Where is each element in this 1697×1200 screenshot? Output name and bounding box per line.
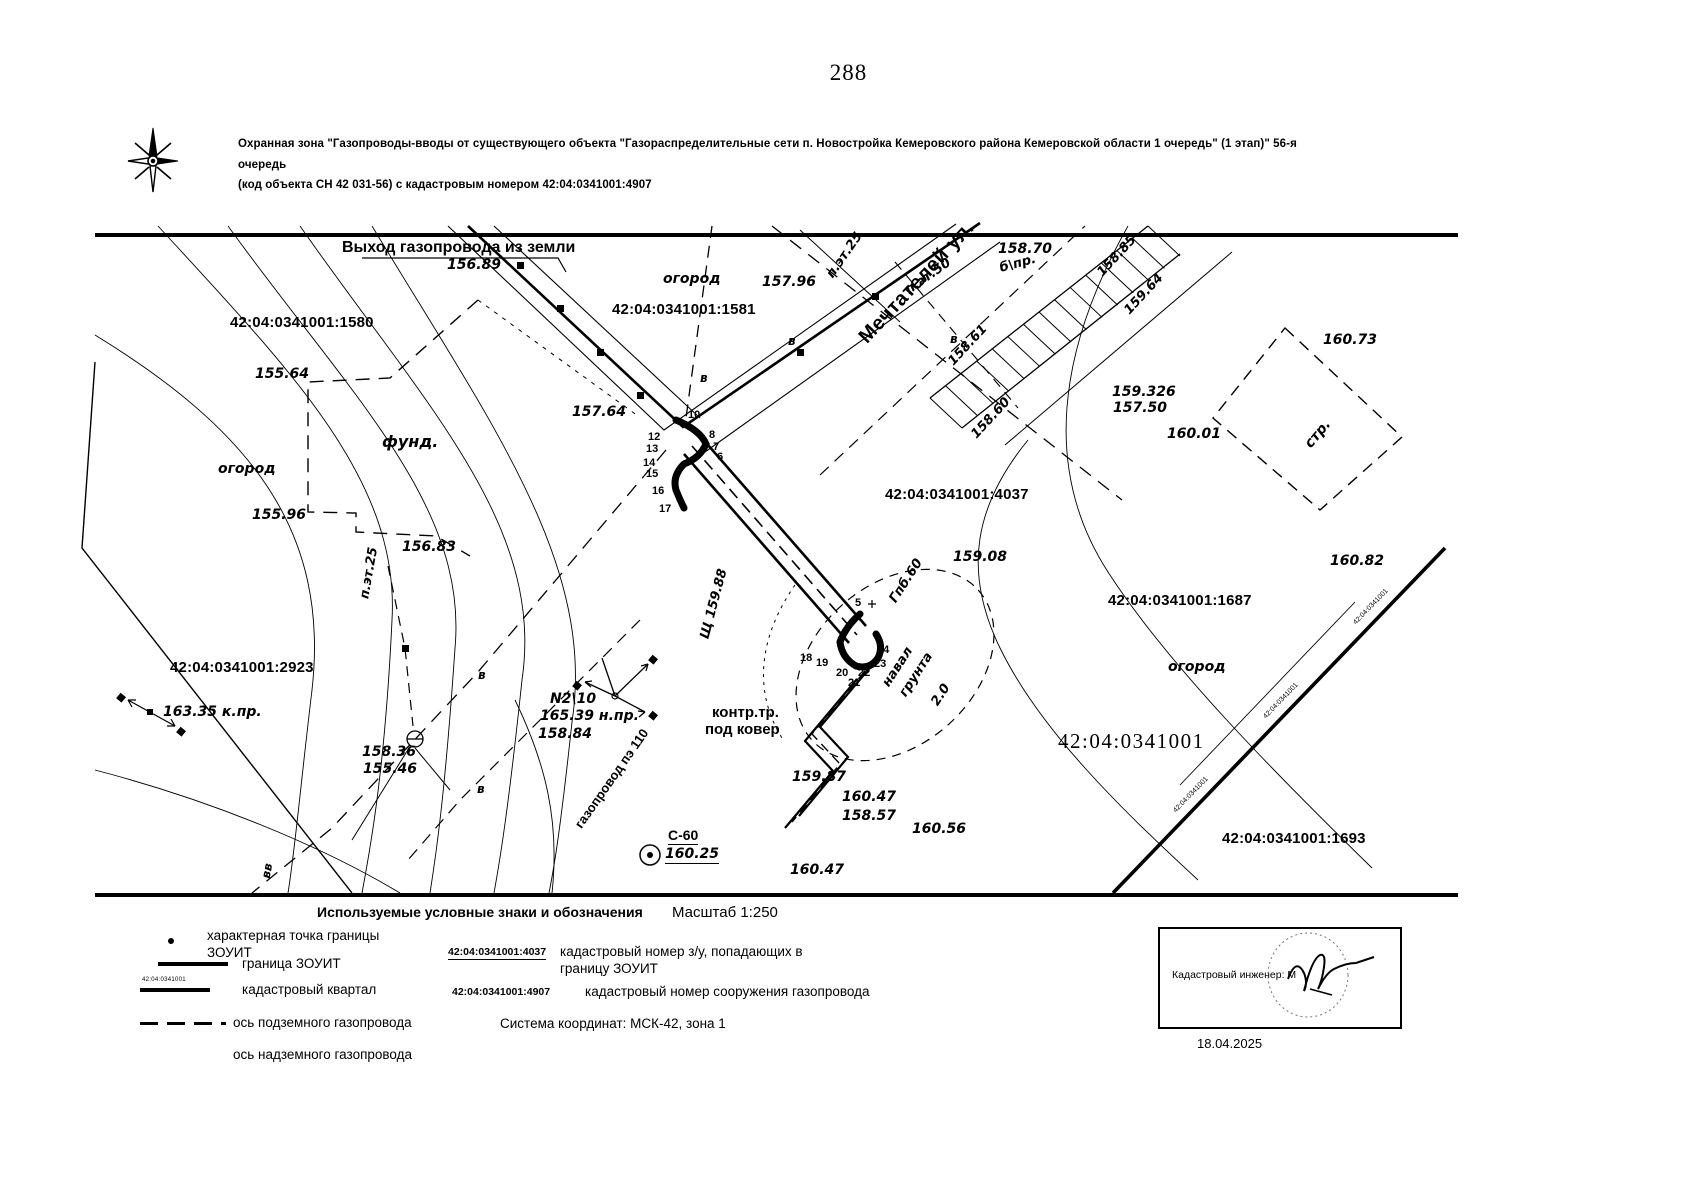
map-label: 158.36	[362, 745, 416, 760]
map-label: 160.82	[1330, 554, 1384, 569]
legend-symbol-quarter-text: 42:04:0341001	[142, 977, 186, 983]
map-label: С-60	[668, 828, 698, 845]
map-label: огород	[1168, 660, 1226, 675]
legend-symbol-zouit-line	[158, 962, 228, 966]
map-label: 160.73	[1323, 333, 1377, 348]
map-label: 42:04:0341001:1693	[1222, 831, 1366, 847]
legend-symbol-quarter-line	[140, 988, 210, 992]
boundary-point-number: 19	[816, 658, 828, 669]
boundary-point-number: 22	[858, 668, 870, 679]
legend-item-label: кадастровый квартал	[242, 982, 376, 999]
svg-text:42:04:0341001: 42:04:0341001	[1172, 776, 1210, 815]
map-label: 156.83	[402, 540, 456, 555]
pipeline-support-marker	[597, 349, 604, 356]
coordinate-system: Система координат: МСК-42, зона 1	[500, 1016, 726, 1033]
map-label: 156.89	[447, 258, 501, 273]
map-label: 160.47	[790, 863, 844, 878]
map-label: фунд.	[382, 434, 438, 451]
signature-date: 18.04.2025	[1197, 1036, 1262, 1051]
map-label: вв	[260, 862, 275, 879]
map-label: огород	[218, 462, 276, 477]
map-label: 42:04:0341001:1687	[1108, 593, 1252, 609]
map-label: 160.47	[842, 790, 896, 805]
map-label: Выход газопровода из земли	[342, 240, 575, 257]
svg-text:42:04:0341001: 42:04:0341001	[1262, 682, 1300, 721]
map-label: 155.96	[252, 508, 306, 523]
map-label: 160.56	[912, 822, 966, 837]
map-label: 157.96	[762, 275, 816, 290]
map-label: 158.84	[538, 727, 592, 742]
pipeline-support-marker	[402, 645, 409, 652]
map-label: контр.тр.	[712, 705, 779, 721]
boundary-point-number: 13	[646, 444, 658, 455]
map-label: 42:04:0341001	[1058, 730, 1205, 752]
legend-symbol-underground-axis	[140, 1022, 226, 1025]
boundary-point-number: 5	[855, 598, 861, 609]
map-label: в	[950, 333, 958, 346]
legend-item-label: граница ЗОУИТ	[242, 956, 341, 973]
boundary-point-number: 6	[717, 452, 723, 463]
map-label: огород	[663, 272, 721, 287]
map-label: 159.87	[792, 770, 846, 785]
svg-text:42:04:0341001: 42:04:0341001	[1352, 588, 1390, 627]
map-label: в	[788, 335, 796, 348]
map-label: 163.35 к.пр.	[163, 705, 262, 720]
pipeline-support-marker	[517, 262, 524, 269]
legend-symbol-point	[168, 938, 174, 944]
boundary-point-number: 10	[688, 410, 700, 421]
pipeline-support-marker	[797, 349, 804, 356]
map-label: 160.01	[1167, 427, 1221, 442]
legend-note-label: кадастровый номер з/у, попадающих в гран…	[560, 944, 835, 978]
map-label: в	[700, 372, 708, 385]
map-label: 42:04:0341001:4037	[885, 487, 1029, 503]
pipeline-support-marker	[637, 392, 644, 399]
map-label: 42:04:0341001:1580	[230, 315, 374, 331]
map-label: N2\10	[550, 692, 596, 707]
map-label: в	[478, 669, 486, 682]
legend-item-label: ось надземного газопровода	[233, 1047, 412, 1064]
map-label: 165.39 н.пр.	[540, 709, 639, 724]
pipeline-support-marker	[872, 293, 879, 300]
boundary-point-number: 21	[848, 678, 860, 689]
map-label: 42:04:0341001:1581	[612, 302, 756, 318]
boundary-point-number: 16	[652, 486, 664, 497]
map-label: под ковер	[705, 722, 780, 738]
boundary-point-number: 8	[709, 430, 715, 441]
boundary-point-number: 12	[648, 432, 660, 443]
map-label: 157.64	[572, 405, 626, 420]
scanned-page: { "page": {"number": "288"}, "header": {…	[0, 0, 1697, 1200]
boundary-point-number: 18	[800, 653, 812, 664]
boundary-point-number: 14	[877, 645, 889, 656]
map-label: 42:04:0341001:2923	[170, 660, 314, 676]
legend-item-label: ось подземного газопровода	[233, 1015, 412, 1032]
legend-title: Используемые условные знаки и обозначени…	[317, 904, 643, 920]
map-label: 155.64	[255, 367, 309, 382]
map-label: в	[477, 783, 485, 796]
map-label: 160.25	[665, 847, 719, 864]
boundary-point-number: 17	[659, 504, 671, 515]
legend-note-label: кадастровый номер сооружения газопровода	[585, 984, 869, 1001]
map-label: 159.08	[953, 550, 1007, 565]
signature-block: Кадастровый инженер: М	[1158, 927, 1402, 1029]
map-label: 155.46	[363, 762, 417, 777]
map-label: 158.57	[842, 809, 896, 824]
signature-icon	[1160, 929, 1396, 1023]
boundary-point-number: 15	[646, 469, 658, 480]
pipeline-support-marker	[557, 305, 564, 312]
map-scale: Масштаб 1:250	[672, 904, 778, 921]
map-label: 159.326	[1112, 385, 1176, 400]
legend-sample-pipeline-number: 42:04:0341001:4907	[452, 986, 550, 998]
boundary-point-number: 20	[836, 668, 848, 679]
legend-sample-parcel-number: 42:04:0341001:4037	[448, 946, 546, 960]
boundary-point-number: 23	[874, 659, 886, 670]
map-label: 157.50	[1113, 401, 1167, 416]
